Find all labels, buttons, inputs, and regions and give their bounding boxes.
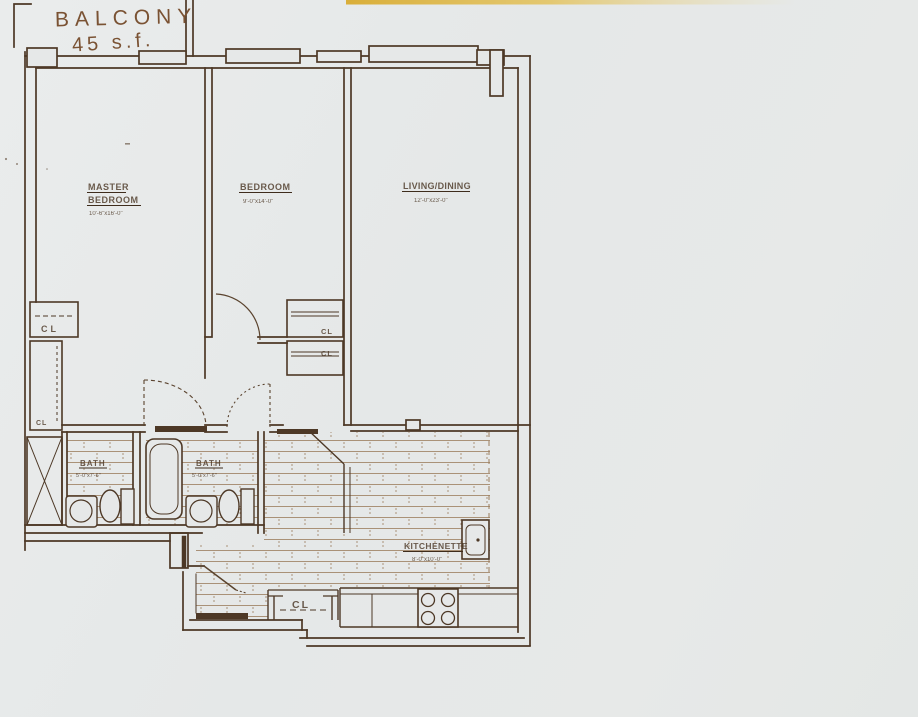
scan-yellow-strip (346, 0, 796, 5)
master-bedroom-name2: BEDROOM (88, 195, 139, 205)
label-living-dining: LIVING/DINING 12'-0"x23'-0" (402, 181, 471, 204)
bath-south-wall (25, 525, 264, 533)
entry-closet-label: CL (292, 599, 310, 611)
scanned-floor-plan-page: BALCONY 45 s.f. MASTER BEDROOM 10'-6"x16… (0, 0, 918, 717)
kitchenette-dims: 8'-0"x10'-0" (412, 557, 442, 563)
kitchenette-name: KITCHENETTE (404, 541, 468, 551)
bathtub (146, 439, 182, 519)
stove (418, 589, 458, 627)
kitchen-sink (462, 520, 489, 559)
floor-plan-drawing: BALCONY 45 s.f. MASTER BEDROOM 10'-6"x16… (0, 0, 918, 717)
balcony-rail (14, 4, 31, 47)
balcony-note-line1: BALCONY (55, 5, 198, 32)
label-master-bedroom: MASTER BEDROOM 10'-6"x16'-0" (87, 182, 141, 217)
shower-stall (27, 437, 62, 525)
wall-master-bedroom-east-inner (205, 68, 212, 337)
entry-tile-floor (196, 588, 268, 617)
south-wall-left (183, 620, 307, 630)
master-closet-label: CL (41, 324, 59, 334)
south-wall-step (302, 620, 307, 638)
bedroom-south-wall (258, 337, 287, 343)
master-bedroom-name1: MASTER (88, 182, 129, 192)
sink-bath2 (186, 496, 217, 527)
bedroom-closet-upper-label: CL (321, 327, 333, 336)
balcony-note: BALCONY 45 s.f. (55, 5, 198, 57)
hall-closet-lower (287, 341, 343, 375)
living-dining-dims: 12'-0"x23'-0" (414, 198, 448, 204)
south-wall-right (300, 638, 530, 646)
living-dining-name: LIVING/DINING (403, 181, 471, 191)
bath2-north-wall-left (205, 425, 227, 432)
bedroom-dims: 9'-0"x14'-0" (243, 199, 273, 205)
master-wardrobe-label: CL (36, 420, 47, 427)
bath2-name: BATH (196, 459, 222, 468)
bath2-door-swing (227, 384, 270, 427)
hall-closet-lower-label: CL (321, 349, 333, 358)
bedroom-door-swing (216, 294, 260, 340)
wall-bedroom-living (344, 68, 351, 425)
living-south-wall (344, 425, 530, 431)
living-south-wall-column (406, 420, 420, 430)
kitchen-tile-floor (264, 432, 490, 588)
bath1-north-wall (62, 425, 145, 432)
bath2-dims: 5'-0"x7'-6" (192, 473, 217, 479)
bath1-dims: 5'-0"x7'-6" (76, 473, 101, 479)
bedroom-closet-upper (287, 300, 343, 337)
pass-tile-floor (196, 545, 264, 588)
label-bedroom: BEDROOM 9'-0"x14'-0" (239, 182, 292, 205)
bedroom-name: BEDROOM (240, 182, 291, 192)
bath1-name: BATH (80, 459, 106, 468)
master-bedroom-door-swing (144, 380, 206, 427)
master-bedroom-dims: 10'-6"x16'-0" (89, 211, 123, 217)
master-wardrobe (30, 341, 62, 430)
sink-bath1 (66, 496, 97, 527)
paper-specks (5, 143, 130, 170)
wall-bath2-kitchen (258, 432, 264, 533)
